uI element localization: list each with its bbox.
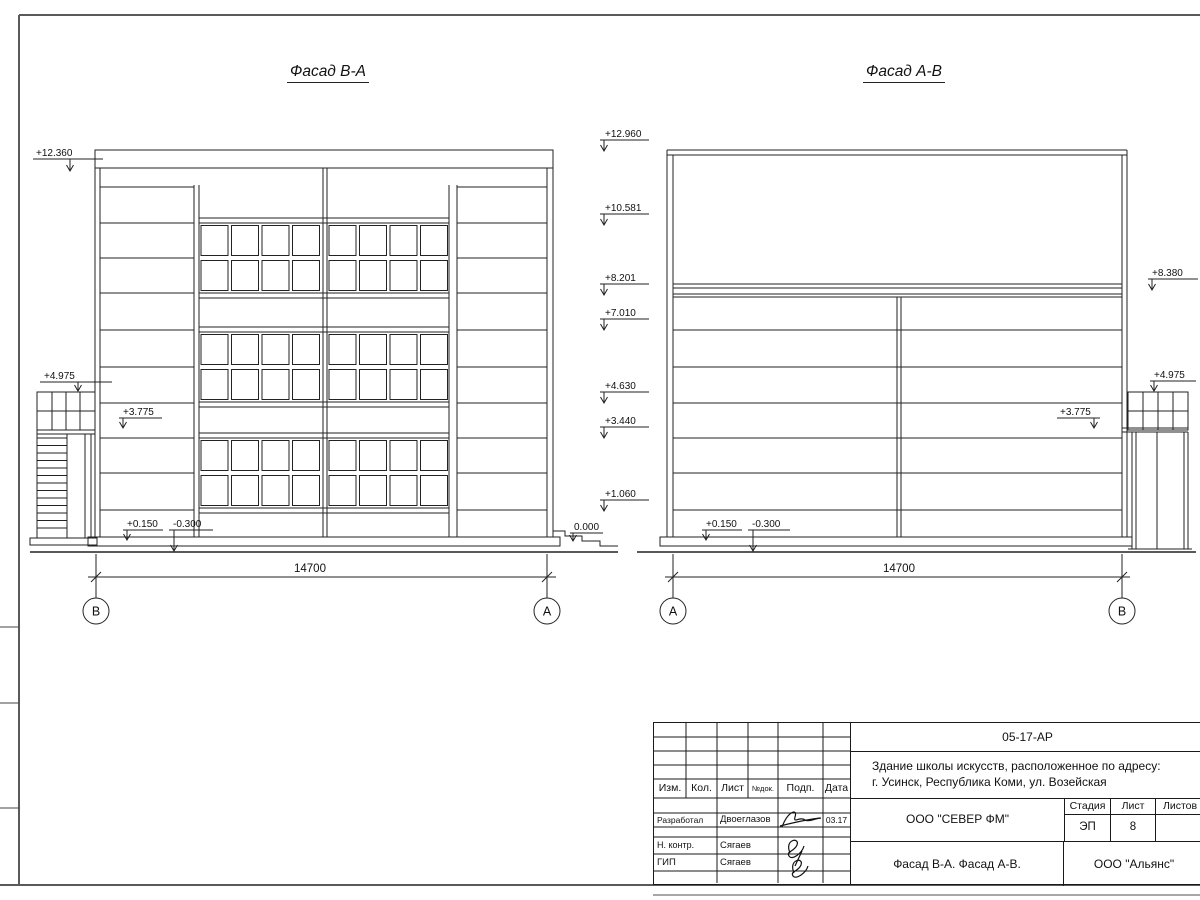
axis-letter: В	[92, 605, 100, 619]
gip-role: ГИП	[657, 854, 717, 871]
elevation-mark-value: +10.581	[605, 203, 642, 214]
ncontr-name: Сягаев	[720, 837, 778, 854]
ncontr-gip-signatures	[776, 835, 823, 879]
project-description: Здание школы искусств, расположенное по …	[851, 752, 1200, 799]
elevation-mark-value: +3.440	[605, 416, 636, 427]
col-header-podp: Подп.	[778, 779, 823, 798]
elevation-mark-value: +12.360	[36, 148, 73, 159]
developer-name: Двоеглазов	[720, 813, 778, 827]
gip-name: Сягаев	[720, 854, 778, 871]
elevation-mark-value: +0.150	[706, 519, 737, 530]
title-block: Изм. Кол. Лист №док. Подп. Дата Разработ…	[653, 722, 1200, 885]
project-line1: Здание школы искусств, расположенное по …	[872, 758, 1200, 774]
facade-va-drawing	[30, 150, 618, 552]
elevation-mark-value: +4.630	[605, 381, 636, 392]
facade-va-title: Фасад В-А	[287, 63, 369, 83]
elevation-mark-value: -0.300	[752, 519, 781, 530]
sheets-label: Листов	[1156, 799, 1200, 814]
sheets-total	[1156, 815, 1200, 841]
drawing-sheet: 14700 В А 14700 А В +12.360+4.975+3.775+…	[0, 0, 1200, 900]
elevation-mark-value: -0.300	[173, 519, 202, 530]
axis-letter: В	[1118, 605, 1126, 619]
developer-role: Разработал	[657, 813, 717, 827]
elevation-mark-value: +3.775	[1060, 407, 1091, 418]
stage-label: Стадия	[1065, 799, 1111, 814]
elevation-mark-value: +12.960	[605, 129, 642, 140]
elevation-mark-value: +1.060	[605, 489, 636, 500]
elevation-mark-value: 0.000	[574, 522, 599, 533]
elevation-mark-value: +4.975	[1154, 370, 1185, 381]
elevation-mark-value: +8.380	[1152, 268, 1183, 279]
facade-av-title: Фасад А-В	[863, 63, 945, 83]
sheet-label: Лист	[1111, 799, 1156, 814]
axis-letter: А	[543, 605, 552, 619]
stage-value: ЭП	[1065, 815, 1111, 841]
drawing-title: Фасад В-А. Фасад А-В.	[851, 842, 1064, 886]
col-header-ndok: №док.	[748, 779, 778, 798]
elevation-mark-value: +8.201	[605, 273, 636, 284]
project-line2: г. Усинск, Республика Коми, ул. Возейска…	[872, 774, 1200, 790]
dimension-value: 14700	[883, 563, 915, 575]
dimension-av: 14700 А В	[660, 554, 1135, 624]
dimension-value: 14700	[294, 563, 326, 575]
elevation-mark-value: +7.010	[605, 308, 636, 319]
elevation-mark-value: +4.975	[44, 371, 75, 382]
facade-av-drawing	[637, 150, 1196, 552]
axis-letter: А	[669, 605, 678, 619]
dimension-va: 14700 В А	[83, 554, 560, 624]
elevation-mark-value: +3.775	[123, 407, 154, 418]
col-header-data: Дата	[823, 779, 850, 798]
ncontr-role: Н. контр.	[657, 837, 717, 854]
document-number: 05-17-АР	[851, 723, 1200, 752]
elevation-marks: +12.360+4.975+3.775+0.150-0.3000.000+12.…	[33, 129, 1198, 551]
elevation-mark-value: +0.150	[127, 519, 158, 530]
sheet-number: 8	[1111, 815, 1156, 841]
title-block-signature-table: Изм. Кол. Лист №док. Подп. Дата Разработ…	[654, 723, 851, 884]
design-organization: ООО "СЕВЕР ФМ"	[851, 799, 1065, 841]
col-header-list: Лист	[717, 779, 748, 798]
contractor-organization: ООО "Альянс"	[1064, 842, 1200, 886]
col-header-kol: Кол.	[686, 779, 717, 798]
title-block-main: 05-17-АР Здание школы искусств, располож…	[851, 723, 1200, 884]
col-header-izm: Изм.	[654, 779, 686, 798]
developer-signature	[778, 807, 823, 833]
developer-date: 03.17	[823, 813, 850, 827]
